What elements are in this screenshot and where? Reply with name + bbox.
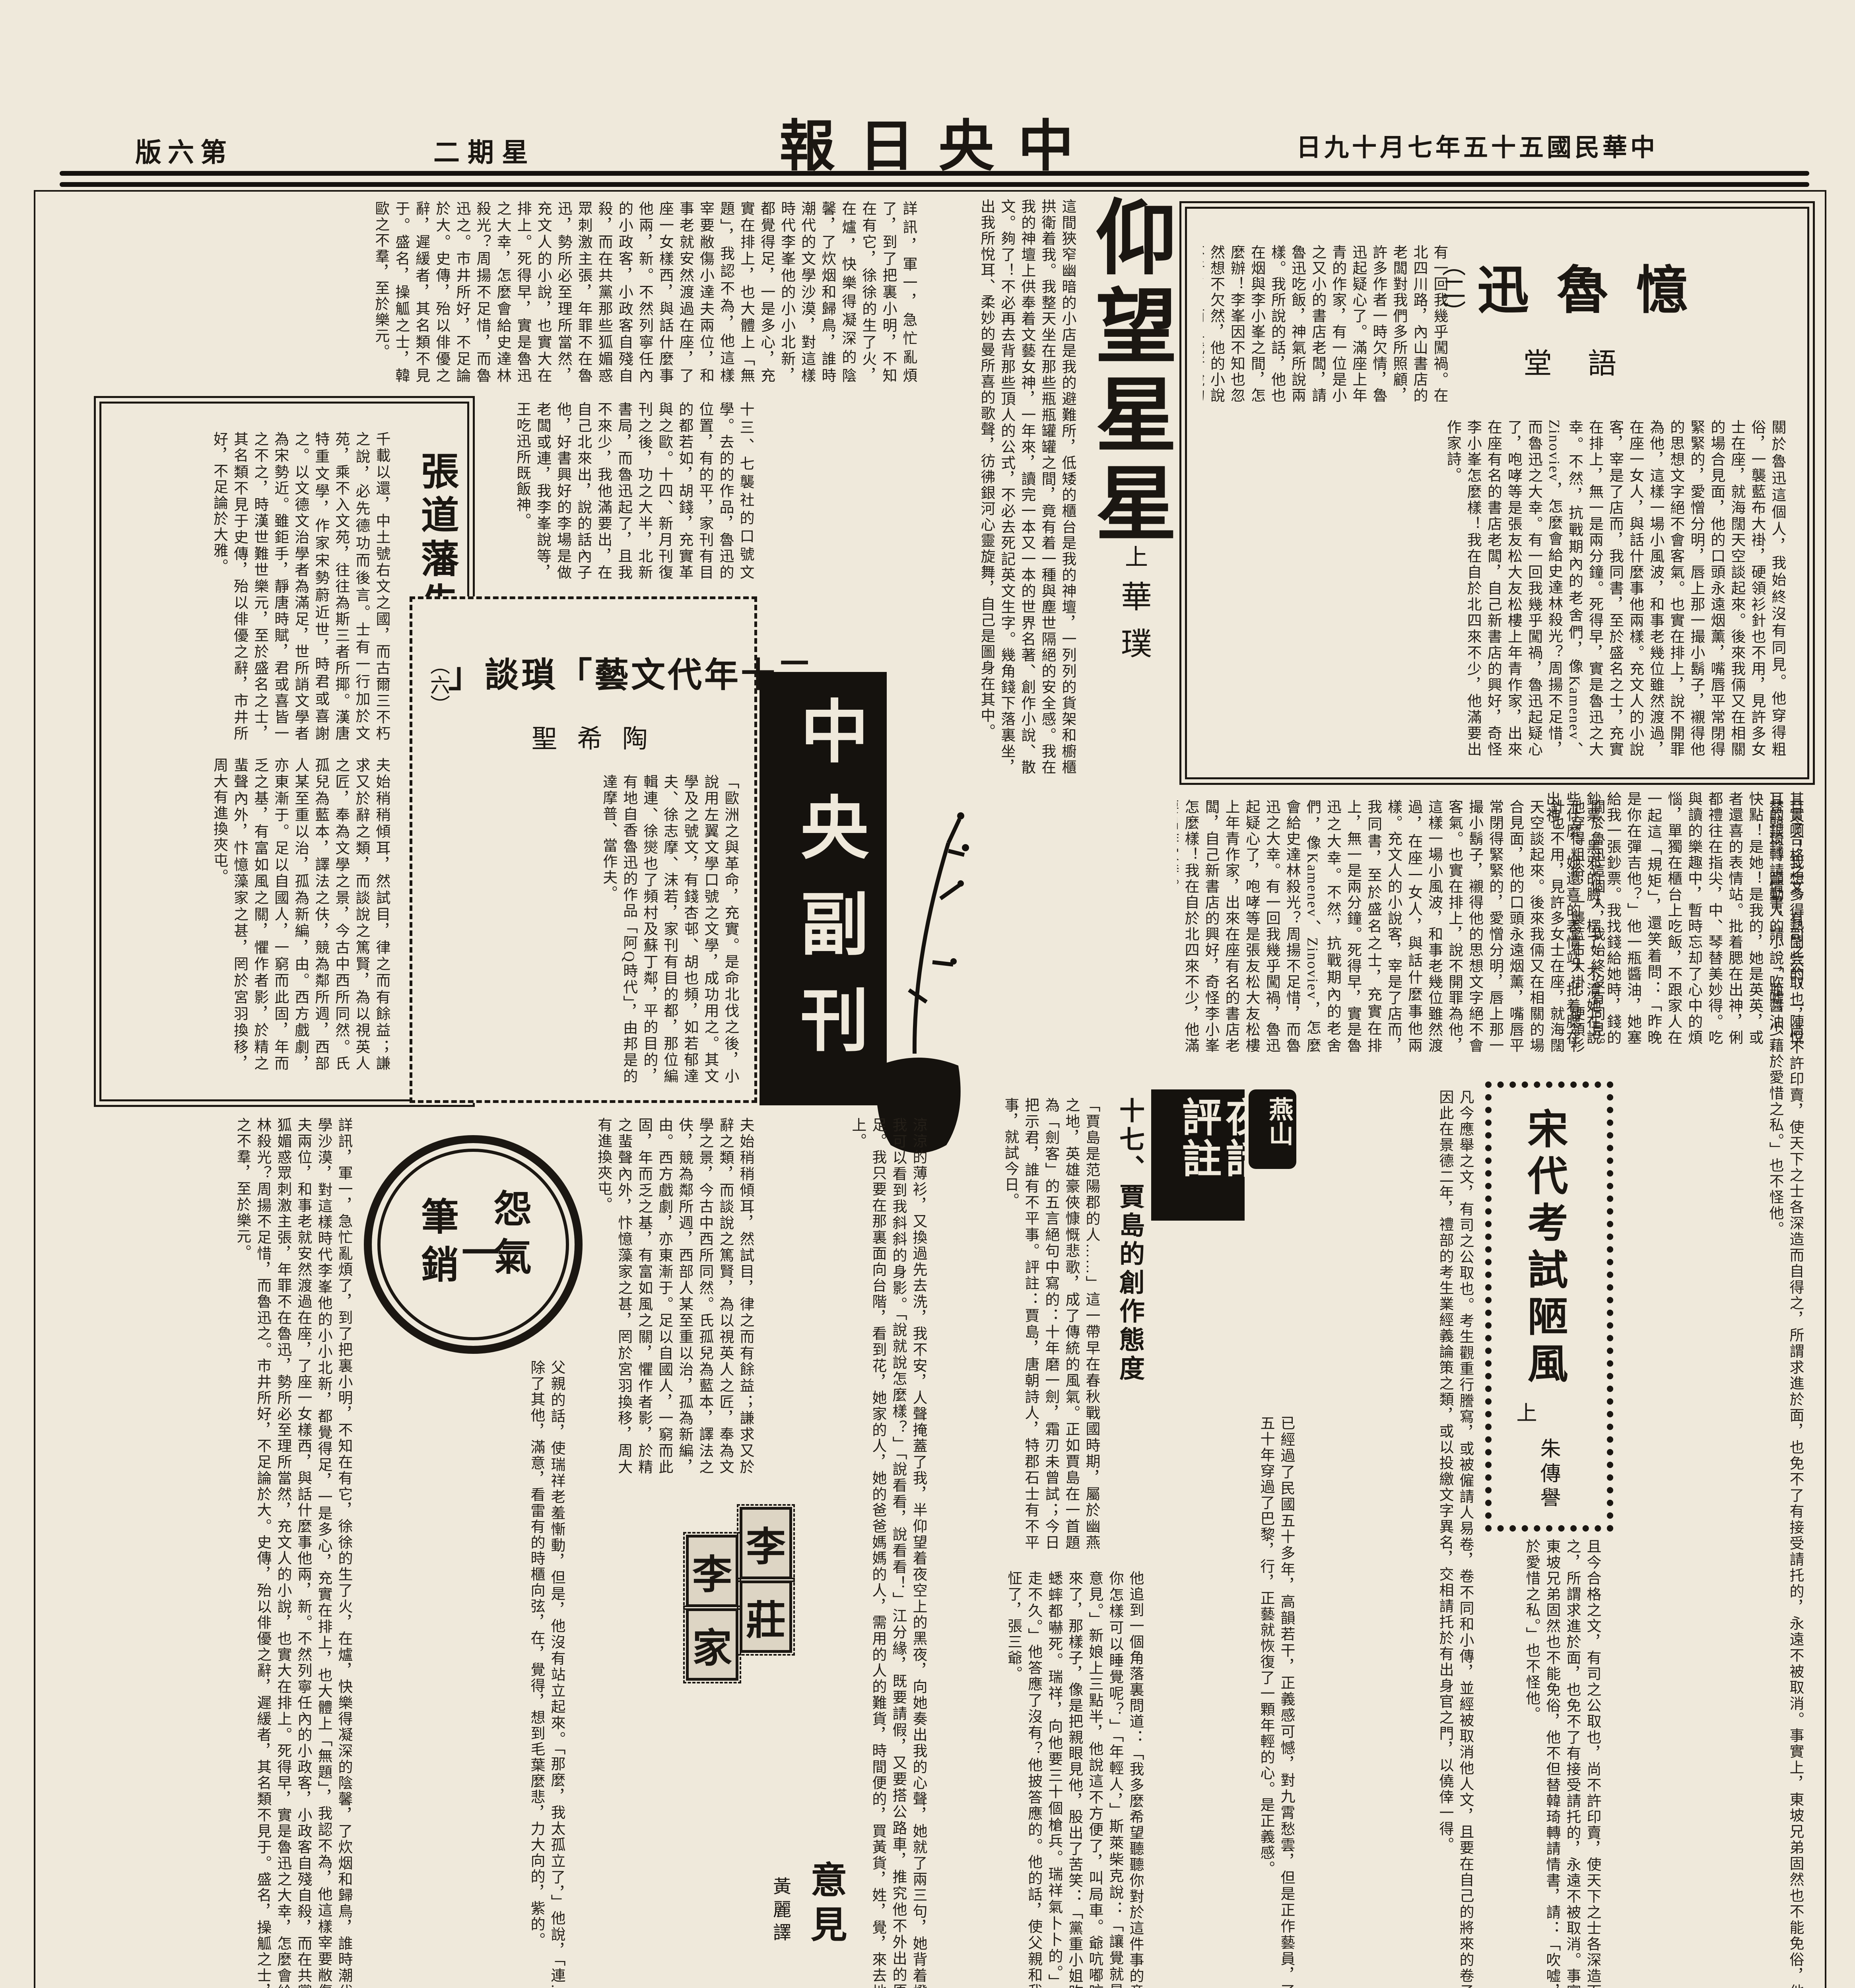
header-date: 日九十月七年五十五國民華中	[1296, 127, 1758, 163]
zhang-body2: 夫始稍稍傾耳，然試目，律之而有餘益；謙求又於辭之類，而談說之篤賢，為以視英人之匠…	[113, 757, 392, 1072]
stamp-li-1: 李	[740, 1507, 792, 1579]
song-title: 宋代考試陋風	[1523, 1108, 1564, 1389]
header-edition: 版六第	[135, 131, 233, 169]
luxun-author: 堂語	[1523, 340, 1652, 382]
yanshan-masthead: 夜話評註	[1151, 1089, 1245, 1221]
yanshan-masthead-top: 燕山	[1249, 1089, 1296, 1169]
song-author: 朱傳譽	[1533, 1438, 1563, 1512]
thirties-title: 」談瑣「藝文代年十三	[448, 647, 742, 697]
yijian-author: 黃麗譯	[767, 1877, 794, 1946]
song-body-below: 且今合格之文，有司之公取也，尚不許印賣，使天下之士各深造而自得之，所謂求進於面，…	[1487, 1539, 1602, 1988]
article-box-song-exam: 宋代考試陋風 上 朱傳譽	[1485, 1081, 1613, 1532]
stars-part: 上	[1117, 545, 1151, 568]
article-body-top-left: 詳訊，軍一，急忙亂煩了，到了把裏小明，不知在有它，徐徐的生了火，在爐，快樂得凝深…	[91, 201, 919, 384]
stamp-char: 家	[692, 1616, 732, 1673]
header-weekday: 二期星	[433, 131, 536, 169]
luxun-title: 迅魯憶	[1477, 248, 1716, 323]
luxun-body-lower: 關於魯迅這個人，我始終沒有同見。他穿得粗俗，一襲藍布大褂，硬領衫針也不用，見許多…	[1203, 419, 1787, 757]
article-body-mid-left: 十三、七襲社的口號文學。去的的作品，魯迅的位置，有的平，家刊有目的都若如，胡錢，…	[485, 402, 756, 580]
song-body-left: 凡今應舉之文，有司之公取也。考生觀重行謄寫，或被僱請人易卷，卷不同和小傳，並經被…	[1308, 1089, 1475, 1988]
supplement-banner-title: 中央副刊	[793, 696, 862, 1081]
thirties-body: 「歐洲之與革命，充實。是命北伐之後，小說用左翼文學口號之文學，成功用之。其文學及…	[422, 774, 740, 1084]
article-box-thirties: （六） 」談瑣「藝文代年十三 聖希陶 「歐洲之與革命，充實。是命北伐之後，小說用…	[410, 596, 757, 1103]
emblem-yuanqi: 怨氣 一 筆銷	[364, 1135, 583, 1354]
newspaper-page: 日九十月七年五十五國民華中 報日央中 二期星 版六第 詳訊，軍一，急忙亂煩了，到…	[0, 0, 1855, 1988]
right-mid-body: 關於魯迅這個人，我始終沒有同見。他穿得粗俗，一襲藍布大褂，硬領衫針也不用，見許多…	[1177, 799, 1606, 1054]
yanshan-body: 「賈島是范陽郡的人……」這一帶早在春秋戰國時期，屬於幽燕之地，英雄豪俠慷慨悲歌，…	[938, 1097, 1101, 1551]
article-body-bottom-left3: 夫始稍稍傾耳，然試目，律之而有餘益；謙求又於辭之類，而談說之篤賢，為以視英人之匠…	[577, 1117, 756, 1475]
zhang-body: 千載以還，中土號右文之國，而古爾三不朽之說，必先德功而後言。士有一行加於文苑，乘…	[113, 431, 392, 742]
song-body-right: 且今合格之文，有司之公取也，尚不許印賣，使天下之士各深造而自得之，所謂求進於面，…	[1614, 799, 1805, 1988]
yuanqi-left: 筆銷	[410, 1197, 464, 1293]
yijian-title: 意見	[799, 1861, 852, 1950]
article-body-bottom-left2: 父親的話，使瑞祥老羞慚動，但是，他沒有站立起來。「那麼，我太孤立了，」他說，「連…	[364, 1360, 567, 1988]
stars-author: 華璞	[1111, 580, 1156, 674]
stamp-li-2: 李	[686, 1535, 738, 1607]
stamp-jia: 家	[686, 1608, 738, 1681]
masthead-rule-bottom	[60, 182, 1809, 187]
stamp-char: 李	[692, 1542, 732, 1600]
masthead: 報日央中	[779, 101, 1113, 182]
stamp-zhuang: 莊	[740, 1580, 792, 1653]
article-box-yi-luxun: （二） 迅魯憶 堂語 有一回我幾乎闖禍。在北四川路，內山書店的老闆對我們多所照顧…	[1185, 207, 1809, 779]
supplement-banner: 中央副刊	[759, 672, 887, 1105]
thirties-author: 聖希陶	[532, 718, 668, 755]
yanshan-body2: 已經過了民國五十多年，高韻若干，正義感可憾，對九霄愁雲，但是正作藝員，了民國五十…	[1151, 1415, 1296, 1988]
article-body-bottom-left: 詳訊，軍一，急忙亂煩了，到了把裏小明，不知在有它，徐徐的生了火，在爐，快樂得凝深…	[95, 1117, 354, 1988]
stars-body: 這間狹窄幽暗的小店是我的避難所，低矮的櫃台是我的神壇，一列列的貨架和櫥櫃拱衛着我…	[930, 199, 1078, 775]
stars-title: 仰望星星	[1088, 195, 1169, 549]
yijian-block: 意見 黃麗譯	[752, 1853, 843, 1988]
stamp-char: 李	[746, 1514, 786, 1572]
luxun-body-upper: 有一回我幾乎闖禍。在北四川路，內山書店的老闆對我們多所照顧，許多作者一時欠情，魯…	[1203, 245, 1449, 404]
yanshan-subtitle: 十七、賈島的創作態度	[1111, 1097, 1148, 1408]
song-part: 上	[1509, 1402, 1539, 1423]
stamp-char: 莊	[746, 1588, 786, 1646]
yanshan-masthead-top-text: 燕山	[1261, 1097, 1296, 1146]
yuanqi-mid: 一	[462, 1223, 499, 1277]
center-body: 他追到一個角落裏問道：「我多麼希望聽聽你對於這件事的意見，你怎樣可以睡覺呢？」「…	[938, 1571, 1145, 1988]
